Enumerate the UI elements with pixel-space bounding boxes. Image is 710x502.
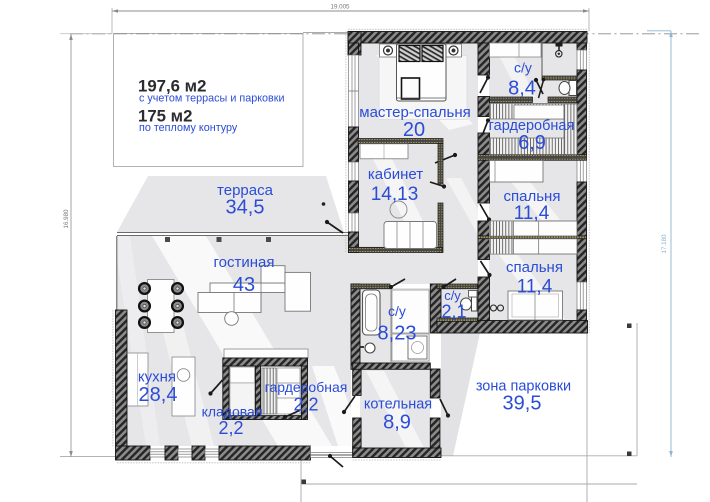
svg-text:гостиная: гостиная [214, 254, 275, 271]
svg-text:43: 43 [233, 274, 255, 296]
svg-text:17.180: 17.180 [661, 234, 668, 253]
svg-text:котельная: котельная [364, 397, 432, 413]
svg-text:19.005: 19.005 [331, 4, 350, 11]
svg-text:8,9: 8,9 [383, 412, 411, 434]
svg-text:с/у: с/у [388, 303, 406, 319]
svg-text:16.980: 16.980 [63, 209, 70, 228]
svg-text:6,9: 6,9 [518, 132, 546, 154]
svg-text:8,23: 8,23 [378, 323, 417, 345]
svg-text:39,5: 39,5 [503, 393, 542, 415]
svg-text:11,4: 11,4 [514, 203, 550, 224]
svg-text:2,2: 2,2 [293, 395, 318, 415]
svg-text:20: 20 [403, 119, 425, 141]
svg-text:кухня: кухня [138, 369, 176, 386]
svg-text:гардеробная: гардеробная [265, 379, 348, 395]
svg-text:11,4: 11,4 [517, 277, 553, 298]
svg-text:с учетом террасы и парковки: с учетом террасы и парковки [139, 93, 285, 105]
svg-text:14,13: 14,13 [371, 184, 419, 205]
svg-text:по теплому контуру: по теплому контуру [139, 122, 238, 134]
svg-text:кабинет: кабинет [368, 166, 423, 183]
svg-text:28,4: 28,4 [139, 384, 178, 406]
svg-text:8,4: 8,4 [508, 78, 536, 100]
svg-text:34,5: 34,5 [226, 197, 265, 219]
svg-text:с/у: с/у [514, 60, 532, 76]
svg-text:спальня: спальня [506, 259, 563, 276]
svg-text:2,1: 2,1 [441, 302, 466, 322]
svg-text:2,2: 2,2 [218, 418, 243, 438]
